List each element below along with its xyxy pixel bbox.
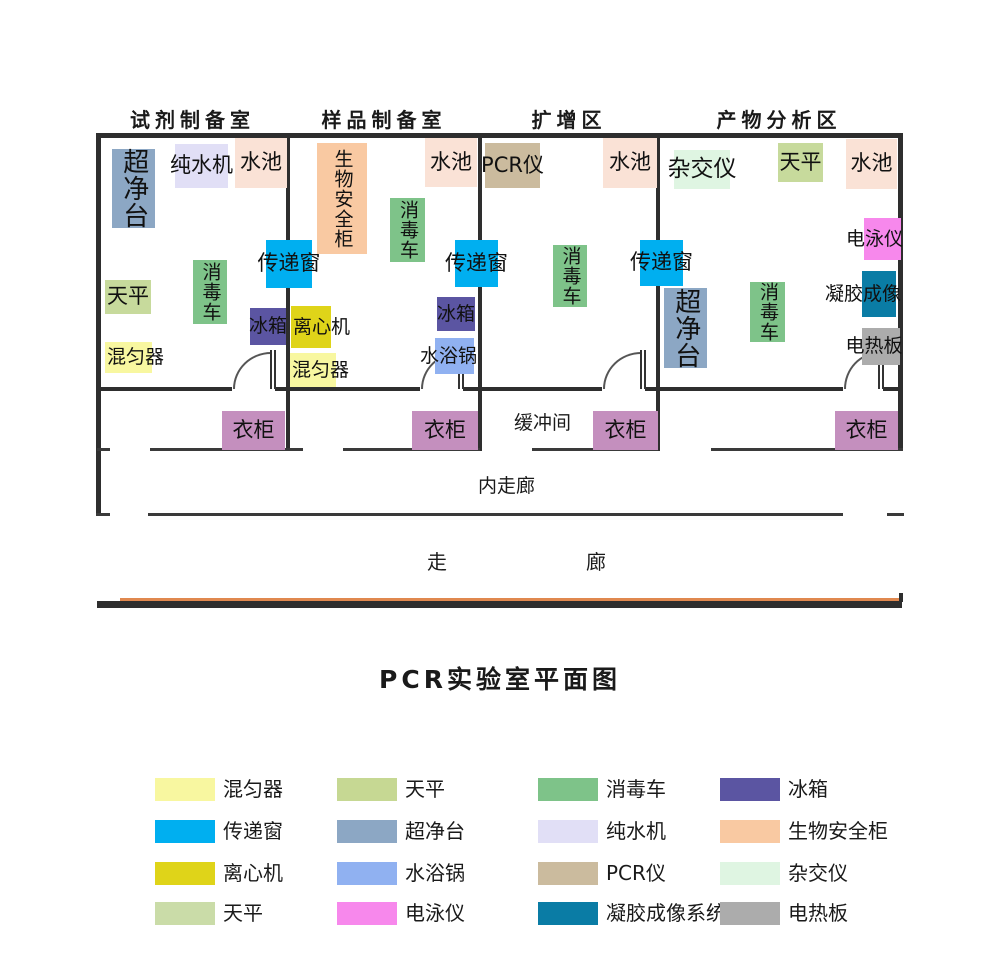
legend-swatch	[720, 902, 780, 925]
equipment-label: 传递窗	[258, 252, 321, 275]
wall	[480, 387, 602, 391]
legend-label: 凝胶成像系统	[606, 902, 726, 925]
wardrobe-label: 衣柜	[424, 419, 466, 442]
balance: 天平	[105, 280, 151, 314]
transfer-window: 传递窗	[640, 240, 683, 286]
legend-swatch	[538, 820, 598, 843]
wardrobe: 衣柜	[593, 411, 658, 450]
disinfect-cart: 消毒车	[553, 245, 587, 307]
water-bath: 水浴锅	[435, 338, 474, 374]
wardrobe: 衣柜	[412, 411, 478, 450]
legend-label: 消毒车	[606, 778, 666, 801]
wall	[887, 513, 904, 516]
legend-label: 电热板	[788, 902, 848, 925]
fridge: 冰箱	[437, 297, 475, 331]
legend-label: 混匀器	[223, 778, 283, 801]
mixer: 混匀器	[290, 353, 336, 387]
wall	[288, 387, 420, 391]
fridge: 冰箱	[250, 308, 286, 345]
electrophoresis: 电泳仪	[864, 218, 901, 260]
wall	[478, 138, 482, 451]
legend-swatch	[155, 902, 215, 925]
buffer-room-label: 缓冲间	[514, 408, 571, 435]
equipment-label: 消毒车	[397, 200, 418, 260]
equipment-label: 混匀器	[107, 347, 164, 368]
equipment-label: 电泳仪	[846, 229, 903, 250]
door-arc	[603, 352, 641, 389]
wall	[658, 387, 843, 391]
legend-swatch	[538, 902, 598, 925]
wall	[97, 133, 903, 138]
legend-label: 传递窗	[223, 820, 283, 843]
equipment-label: 超净台	[119, 148, 148, 229]
inner-corridor-label: 内走廊	[478, 471, 535, 498]
legend-label: 冰箱	[788, 778, 828, 801]
wall	[463, 387, 480, 391]
wardrobe-label: 衣柜	[846, 419, 888, 442]
equipment-label: 天平	[780, 151, 822, 174]
legend-swatch	[720, 862, 780, 885]
legend-label: 超净台	[405, 820, 465, 843]
legend-swatch	[720, 778, 780, 801]
wall	[275, 387, 288, 391]
legend-swatch	[720, 820, 780, 843]
wall	[883, 387, 900, 391]
disinfect-cart: 消毒车	[750, 282, 785, 342]
legend-label: 天平	[223, 902, 263, 925]
hybridizer: 杂交仪	[674, 150, 730, 189]
legend-swatch	[337, 820, 397, 843]
equipment-label: 天平	[107, 285, 149, 308]
legend-label: 纯水机	[606, 820, 666, 843]
equipment-label: 消毒车	[200, 262, 221, 322]
equipment-label: 传递窗	[630, 251, 693, 274]
centrifuge: 离心机	[291, 306, 331, 348]
legend-label: PCR仪	[606, 862, 666, 885]
transfer-window: 传递窗	[266, 240, 312, 288]
equipment-label: 传递窗	[445, 252, 508, 275]
water-purifier: 纯水机	[175, 144, 228, 188]
transfer-window: 传递窗	[455, 240, 498, 287]
door-arc	[233, 352, 271, 389]
gel-imaging: 凝胶成像	[862, 271, 896, 317]
wardrobe: 衣柜	[835, 411, 898, 450]
door-leaf	[270, 350, 276, 389]
room-title-reagent-prep: 试剂制备室	[97, 104, 288, 133]
legend-swatch	[337, 862, 397, 885]
sink: 水池	[846, 139, 897, 189]
floor-plan: 试剂制备室 样品制备室 扩增区 产物分析区 超净台 纯水机 水池 消毒车 传递窗…	[0, 0, 1000, 974]
wall	[96, 513, 110, 516]
equipment-label: 水池	[851, 152, 893, 175]
wall	[645, 387, 658, 391]
equipment-label: 消毒车	[757, 282, 778, 342]
wall	[899, 593, 903, 602]
equipment-label: 水池	[430, 151, 472, 174]
legend-label: 水浴锅	[405, 862, 465, 885]
disinfect-cart: 消毒车	[390, 198, 425, 262]
equipment-label: 水浴锅	[420, 346, 477, 367]
wall	[148, 513, 843, 516]
equipment-label: 生物安全柜	[332, 149, 353, 249]
equipment-label: 超净台	[671, 288, 700, 369]
mixer: 混匀器	[105, 342, 152, 373]
sink: 水池	[235, 138, 287, 188]
corridor-label: 廊	[586, 546, 606, 575]
equipment-label: 纯水机	[170, 154, 233, 177]
page-title: PCR实验室平面图	[0, 660, 1000, 696]
clean-bench: 超净台	[112, 149, 155, 228]
sink: 水池	[603, 138, 657, 188]
equipment-label: PCR仪	[481, 154, 544, 177]
door-leaf	[640, 350, 646, 389]
wall	[97, 387, 232, 391]
disinfect-cart: 消毒车	[193, 260, 227, 324]
equipment-label: 冰箱	[249, 316, 287, 337]
equipment-label: 凝胶成像	[825, 284, 901, 305]
hot-plate: 电热板	[862, 328, 900, 365]
equipment-label: 水池	[240, 151, 282, 174]
equipment-label: 水池	[609, 151, 651, 174]
legend-label: 生物安全柜	[788, 820, 888, 843]
equipment-label: 电热板	[846, 336, 903, 357]
corridor-label: 走	[427, 546, 447, 575]
clean-bench: 超净台	[664, 288, 707, 368]
biosafety-cabinet: 生物安全柜	[317, 143, 367, 254]
room-title-amplification: 扩增区	[480, 104, 658, 133]
wardrobe-label: 衣柜	[605, 419, 647, 442]
wall	[97, 448, 110, 451]
legend-swatch	[538, 862, 598, 885]
wall	[97, 601, 902, 608]
equipment-label: 混匀器	[292, 360, 349, 381]
legend-label: 离心机	[223, 862, 283, 885]
wall	[96, 133, 101, 516]
balance: 天平	[778, 143, 823, 182]
legend-swatch	[155, 862, 215, 885]
legend-swatch	[538, 778, 598, 801]
legend-swatch	[155, 778, 215, 801]
equipment-label: 离心机	[293, 317, 350, 338]
legend-label: 杂交仪	[788, 862, 848, 885]
pcr-machine: PCR仪	[485, 143, 540, 188]
room-title-product-analysis: 产物分析区	[658, 104, 900, 133]
wardrobe: 衣柜	[222, 411, 285, 450]
legend-label: 电泳仪	[405, 902, 465, 925]
equipment-label: 消毒车	[560, 246, 581, 306]
legend-swatch	[337, 902, 397, 925]
legend-label: 天平	[405, 778, 445, 801]
equipment-label: 杂交仪	[668, 157, 737, 182]
legend-swatch	[337, 778, 397, 801]
room-title-sample-prep: 样品制备室	[288, 104, 480, 133]
equipment-label: 冰箱	[437, 304, 475, 325]
sink: 水池	[425, 138, 477, 187]
legend-swatch	[155, 820, 215, 843]
wardrobe-label: 衣柜	[233, 419, 275, 442]
